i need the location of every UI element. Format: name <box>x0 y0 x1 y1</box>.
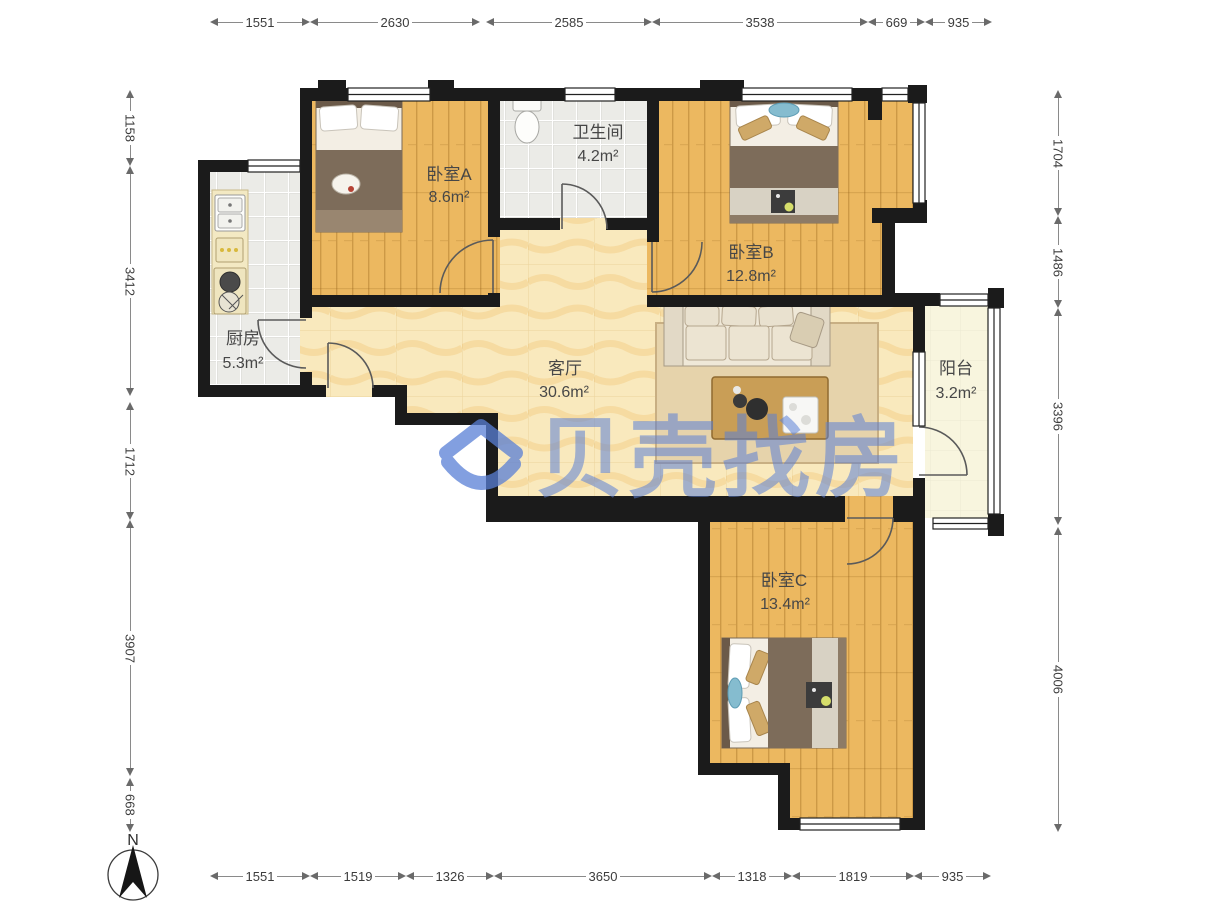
area-kitchen: 5.3m² <box>223 355 265 372</box>
toilet-icon <box>513 98 541 143</box>
label-living-room: 客厅 <box>548 359 582 378</box>
area-bedroom-b: 12.8m² <box>726 268 776 285</box>
label-balcony: 阳台 <box>939 359 973 378</box>
dim-right-1: 1704 <box>1050 90 1066 216</box>
floor-plan-page: 贝壳找房 卧室A 8.6m² 卫生间 4.2m² 卧室B 12.8m² 厨房 5… <box>0 0 1211 903</box>
area-living-room: 30.6m² <box>539 384 589 401</box>
brand-watermark-text: 贝壳找房 <box>536 409 908 508</box>
dim-left-2: 3412 <box>122 166 138 396</box>
window-bedroom-b <box>742 88 852 101</box>
compass: N <box>108 832 158 900</box>
dim-bottom-1: 1551 <box>210 868 310 884</box>
window-bedroom-a <box>348 88 430 101</box>
label-kitchen: 厨房 <box>226 329 260 348</box>
window-balcony-south <box>933 518 988 529</box>
label-bathroom: 卫生间 <box>573 123 624 142</box>
dim-right-4: 4006 <box>1050 527 1066 832</box>
dim-top-3: 2585 <box>486 14 652 30</box>
dim-bottom-6: 1819 <box>792 868 914 884</box>
window-balcony-east <box>988 308 1000 514</box>
window-living-balcony <box>913 352 925 426</box>
floor-plan-drawing: 贝壳找房 卧室A 8.6m² 卫生间 4.2m² 卧室B 12.8m² 厨房 5… <box>0 0 1211 903</box>
north-arrow-icon <box>119 845 147 898</box>
label-bedroom-b: 卧室B <box>728 243 773 262</box>
bed-a-icon <box>316 99 402 232</box>
dim-bottom-5: 1318 <box>712 868 792 884</box>
hallway-floor <box>500 218 647 307</box>
window-bedroom-b-corner <box>882 88 908 101</box>
dim-left-4: 3907 <box>122 520 138 776</box>
label-bedroom-c: 卧室C <box>761 571 807 590</box>
dim-right-2: 1486 <box>1050 216 1066 308</box>
bed-b-icon <box>730 99 838 223</box>
window-bathroom <box>565 88 615 101</box>
area-bedroom-c: 13.4m² <box>760 596 810 613</box>
area-balcony: 3.2m² <box>936 385 978 402</box>
dim-right-3: 3396 <box>1050 308 1066 525</box>
dim-left-1: 1158 <box>122 90 138 166</box>
dim-bottom-4: 3650 <box>494 868 712 884</box>
window-bedroom-c <box>800 818 900 830</box>
balcony-floor <box>925 306 988 518</box>
dim-bottom-3: 1326 <box>406 868 494 884</box>
dim-top-4: 3538 <box>652 14 868 30</box>
dim-top-5: 669 <box>868 14 925 30</box>
dim-bottom-7: 935 <box>914 868 991 884</box>
label-bedroom-a: 卧室A <box>426 165 472 184</box>
area-bedroom-a: 8.6m² <box>429 189 471 206</box>
dim-top-2: 2630 <box>310 14 480 30</box>
dim-top-6: 935 <box>925 14 992 30</box>
dim-top-1: 1551 <box>210 14 310 30</box>
dim-left-5: 668 <box>122 778 138 832</box>
compass-north-label: N <box>127 832 139 849</box>
window-balcony-north <box>940 294 988 306</box>
dim-bottom-2: 1519 <box>310 868 406 884</box>
window-kitchen <box>248 160 300 172</box>
dim-left-3: 1712 <box>122 402 138 520</box>
bed-c-icon <box>722 638 846 748</box>
kitchen-counter-icon <box>212 190 248 314</box>
area-bathroom: 4.2m² <box>578 148 620 165</box>
window-bedroom-b-east <box>913 103 925 203</box>
